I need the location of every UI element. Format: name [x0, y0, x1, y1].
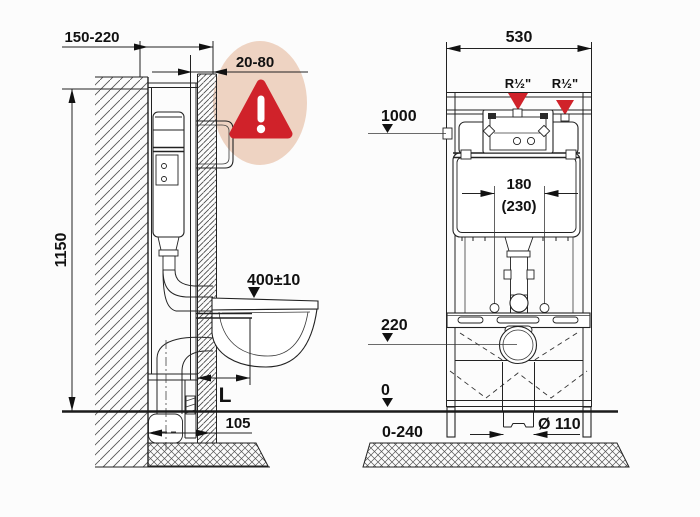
swing-range-line	[533, 333, 577, 361]
flush-pipe-front	[504, 237, 534, 313]
foundation-slab-left	[148, 443, 268, 466]
tank-clip	[566, 150, 576, 159]
arrowhead	[178, 69, 192, 76]
dim-frame-width: 530	[447, 29, 592, 52]
foundation-slab-right	[363, 443, 629, 467]
side-view: 150-220 20-80 1150 400±10	[53, 29, 318, 467]
level-0: 0	[381, 382, 393, 407]
tank-clip	[461, 150, 471, 159]
technical-drawing: 150-220 20-80 1150 400±10	[0, 0, 700, 517]
mounting-rail	[447, 313, 590, 328]
dim-projection-label: L	[219, 384, 232, 407]
shaft-clip	[540, 113, 548, 119]
dim-bowl-height: 400±10	[247, 272, 300, 298]
level-1000-label: 1000	[381, 108, 417, 125]
dim-rod-spacing-alt-label: (230)	[501, 198, 536, 215]
dim-frame-height-label: 1150	[53, 233, 70, 268]
supply-valve-icon	[556, 100, 574, 115]
arrowhead	[69, 89, 76, 103]
dim-feet-range-label: 0-240	[382, 424, 423, 441]
level-marker-icon	[382, 398, 393, 407]
left-connection-label: R½"	[505, 76, 531, 91]
swing-range-line	[460, 333, 504, 361]
dim-frame-width-label: 530	[506, 29, 533, 46]
technical-drawing-canvas: 150-220 20-80 1150 400±10	[0, 0, 700, 517]
arrowhead	[447, 45, 461, 52]
dim-foot-offset-label: 105	[225, 415, 250, 432]
arrowhead	[199, 44, 213, 51]
arrowhead	[134, 44, 148, 51]
dim-rod-spacing-label: 180	[506, 176, 531, 193]
level-1000: 1000	[368, 108, 446, 134]
supply-valve-icon	[508, 93, 528, 110]
finish-panel	[198, 74, 217, 443]
dim-bowl-height-label: 400±10	[247, 272, 300, 289]
right-connection-label: R½"	[552, 76, 578, 91]
dim-drain-diameter-label: Ø 110	[538, 416, 581, 433]
arrowhead	[236, 375, 250, 382]
level-220-label: 220	[381, 317, 408, 334]
arrowhead	[578, 45, 592, 52]
swing-range-line	[450, 371, 587, 398]
dim-panel-thickness-label: 20-80	[236, 54, 274, 71]
level-marker-icon	[382, 333, 393, 342]
level-marker-icon	[382, 124, 393, 133]
frame-foot-side	[185, 380, 196, 438]
shaft-clip	[488, 113, 496, 119]
dim-wall-depth-label: 150-220	[64, 29, 119, 46]
arrowhead	[490, 431, 504, 438]
front-view: 530 R½" R½" 1000 180 (230) 220 0	[363, 29, 629, 467]
arrowhead	[69, 397, 76, 411]
level-0-label: 0	[381, 382, 390, 399]
dim-drain-diameter: Ø 110	[470, 416, 581, 438]
